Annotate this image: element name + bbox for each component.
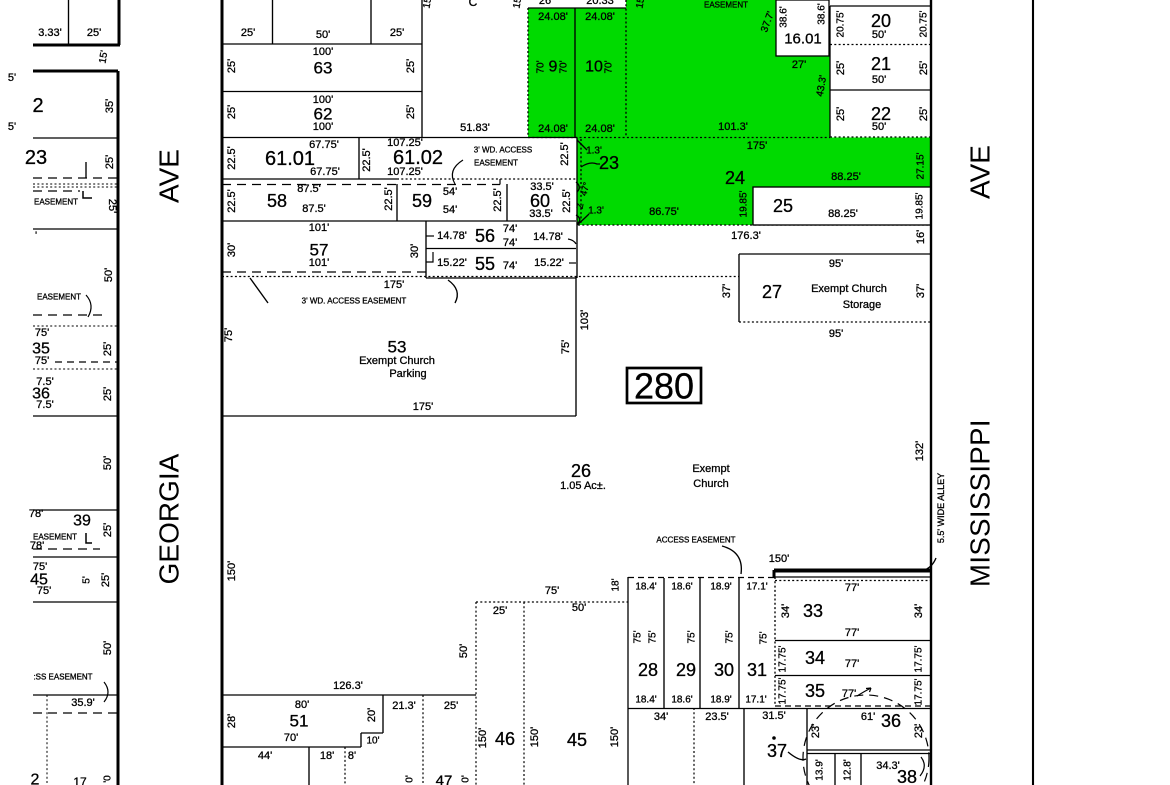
svg-text:AVE: AVE <box>154 149 185 203</box>
svg-text:GEORGIA: GEORGIA <box>154 453 185 584</box>
svg-text:50': 50' <box>102 456 114 470</box>
svg-text:35: 35 <box>805 681 825 701</box>
svg-text:25': 25' <box>102 523 114 537</box>
svg-text:EASEMENT: EASEMENT <box>34 198 78 207</box>
svg-text:101': 101' <box>309 257 329 269</box>
svg-text:75': 75' <box>223 328 235 342</box>
svg-text:35': 35' <box>104 99 116 113</box>
svg-text:18': 18' <box>320 750 334 762</box>
svg-text:126.3': 126.3' <box>333 680 363 692</box>
svg-text:Church: Church <box>693 478 728 490</box>
svg-text:44': 44' <box>258 750 272 762</box>
svg-text:10: 10 <box>585 59 603 76</box>
svg-text:33.5': 33.5' <box>529 208 553 220</box>
svg-text:88.25': 88.25' <box>831 171 861 183</box>
svg-text:87.5': 87.5' <box>302 203 326 215</box>
svg-text:22.5': 22.5' <box>492 188 504 212</box>
svg-text:23': 23' <box>810 724 822 738</box>
svg-text:22.5': 22.5' <box>226 146 238 170</box>
svg-text:34': 34' <box>654 711 668 723</box>
svg-text:87.5': 87.5' <box>297 183 321 195</box>
svg-text:46: 46 <box>495 729 515 749</box>
svg-text:28': 28' <box>226 714 238 728</box>
svg-text:25: 25 <box>773 196 793 216</box>
svg-text:75': 75' <box>759 631 770 644</box>
svg-text:24.08': 24.08' <box>585 123 615 135</box>
svg-text:25': 25' <box>918 61 930 75</box>
svg-text:18.4': 18.4' <box>635 582 656 593</box>
svg-text:25': 25' <box>226 105 238 119</box>
svg-text:25': 25' <box>100 573 112 587</box>
svg-text:51.83': 51.83' <box>460 122 490 134</box>
svg-text:50': 50' <box>102 641 114 655</box>
svg-text:23': 23' <box>913 724 925 738</box>
svg-text:17.75': 17.75' <box>778 645 789 672</box>
svg-text:25': 25' <box>918 107 930 121</box>
svg-text:58: 58 <box>267 191 287 211</box>
svg-text:18.9': 18.9' <box>710 695 731 706</box>
svg-text:20.33: 20.33 <box>586 0 614 7</box>
svg-text:33: 33 <box>803 601 823 621</box>
svg-text:51: 51 <box>290 712 309 731</box>
svg-text:2: 2 <box>31 772 40 785</box>
svg-text:25': 25' <box>241 27 255 39</box>
svg-text:54': 54' <box>443 186 457 198</box>
svg-text:50': 50' <box>872 29 886 41</box>
svg-text:29: 29 <box>676 660 696 680</box>
svg-text:Exempt Church: Exempt Church <box>811 283 887 295</box>
svg-text:EASEMENT: EASEMENT <box>37 293 81 302</box>
svg-text:15.22': 15.22' <box>534 257 564 269</box>
svg-text:5': 5' <box>82 576 93 584</box>
svg-text:74': 74' <box>503 223 517 235</box>
svg-text:75': 75' <box>37 585 51 597</box>
svg-text:78': 78' <box>29 508 43 520</box>
svg-text:24.08': 24.08' <box>538 11 568 23</box>
svg-text:18.9': 18.9' <box>710 582 731 593</box>
svg-text:61.01: 61.01 <box>265 148 315 170</box>
svg-text:39: 39 <box>73 513 91 530</box>
svg-text:15.22': 15.22' <box>437 257 467 269</box>
svg-text:1.05 Ac±.: 1.05 Ac±. <box>560 480 606 492</box>
svg-text:107.25': 107.25' <box>387 166 423 178</box>
svg-text:176.3': 176.3' <box>731 230 761 242</box>
svg-text:37': 37' <box>915 284 927 298</box>
svg-text:38.6': 38.6' <box>817 3 828 24</box>
svg-text:0': 0' <box>405 775 416 783</box>
svg-text:30: 30 <box>714 660 734 680</box>
svg-text:30': 30' <box>409 244 421 258</box>
svg-text:17.1': 17.1' <box>745 695 766 706</box>
svg-text:20.75': 20.75' <box>836 10 847 37</box>
svg-text:77': 77' <box>842 688 856 700</box>
svg-text:MISSISSIPPI: MISSISSIPPI <box>965 419 996 587</box>
svg-text:24.08': 24.08' <box>538 123 568 135</box>
svg-text:25': 25' <box>226 59 238 73</box>
svg-text:30': 30' <box>226 243 238 257</box>
svg-text:9: 9 <box>549 59 558 76</box>
svg-text:25': 25' <box>493 605 507 617</box>
svg-text:5': 5' <box>8 72 16 84</box>
svg-text:175': 175' <box>747 140 767 152</box>
svg-text:'0: '0 <box>103 775 114 783</box>
svg-text:19.85': 19.85' <box>915 192 926 219</box>
svg-text:25': 25' <box>405 105 417 119</box>
svg-text:2: 2 <box>32 95 43 117</box>
svg-text:27: 27 <box>762 282 782 302</box>
svg-text:25': 25' <box>104 155 116 169</box>
svg-text:8': 8' <box>348 750 356 762</box>
svg-text:12.8': 12.8' <box>843 759 854 780</box>
svg-text:16.01: 16.01 <box>784 31 822 48</box>
svg-text:34: 34 <box>805 648 825 668</box>
svg-text:27': 27' <box>792 59 806 71</box>
svg-text:75': 75' <box>560 340 572 354</box>
svg-text:25': 25' <box>444 700 458 712</box>
svg-text:70': 70' <box>559 60 570 73</box>
svg-text:18.6': 18.6' <box>671 695 692 706</box>
svg-text:18.4': 18.4' <box>635 695 656 706</box>
svg-text:22.5': 22.5' <box>226 189 238 213</box>
svg-text:95': 95' <box>829 328 843 340</box>
svg-text:0': 0' <box>461 775 472 783</box>
svg-text:75': 75' <box>725 630 736 643</box>
svg-text:23.5': 23.5' <box>705 711 729 723</box>
svg-text:34': 34' <box>913 604 925 618</box>
svg-text:16': 16' <box>915 230 927 244</box>
svg-text:45: 45 <box>567 730 587 750</box>
svg-text:53: 53 <box>388 338 407 357</box>
svg-text:21: 21 <box>871 54 891 74</box>
svg-text:103': 103' <box>579 310 591 330</box>
svg-text:20': 20' <box>366 708 378 722</box>
svg-text:26': 26' <box>539 0 553 7</box>
svg-text:25': 25' <box>102 387 114 401</box>
svg-text:17.1': 17.1' <box>746 582 767 593</box>
svg-text:150': 150' <box>529 727 541 747</box>
svg-text:C: C <box>469 0 478 9</box>
svg-text:74': 74' <box>503 237 517 249</box>
svg-text:17.75': 17.75' <box>914 645 925 672</box>
svg-text:50': 50' <box>316 29 330 41</box>
svg-text:Exempt Church: Exempt Church <box>359 355 435 367</box>
svg-text:19.85': 19.85' <box>739 190 750 217</box>
svg-text:27.15': 27.15' <box>916 152 927 179</box>
svg-text:25': 25' <box>87 27 101 39</box>
svg-text:23: 23 <box>25 147 47 169</box>
svg-text:95': 95' <box>829 258 843 270</box>
svg-text:50': 50' <box>872 121 886 133</box>
svg-text:18.6': 18.6' <box>671 582 692 593</box>
svg-text:22.5': 22.5' <box>361 148 373 172</box>
svg-text:101.3': 101.3' <box>718 121 748 133</box>
svg-text:10': 10' <box>366 736 379 747</box>
svg-text:50': 50' <box>103 268 115 282</box>
svg-text:25': 25' <box>390 27 404 39</box>
svg-text:Parking: Parking <box>389 368 426 380</box>
svg-text:100': 100' <box>313 121 333 133</box>
svg-text:75': 75' <box>633 630 644 643</box>
svg-text:78': 78' <box>30 540 44 552</box>
svg-text:86.75': 86.75' <box>649 206 679 218</box>
svg-text:70': 70' <box>536 60 547 73</box>
svg-text:75': 75' <box>35 327 49 339</box>
svg-text:18': 18' <box>611 578 622 591</box>
svg-text:35.9': 35.9' <box>71 697 95 709</box>
svg-text:13.9': 13.9' <box>815 759 826 780</box>
svg-text:59: 59 <box>412 191 432 211</box>
svg-text:37: 37 <box>767 741 787 761</box>
svg-text:280: 280 <box>634 366 694 407</box>
svg-text:3' WD. ACCESS EASEMENT: 3' WD. ACCESS EASEMENT <box>302 297 407 306</box>
svg-text:25': 25' <box>106 199 118 213</box>
svg-text:22.5': 22.5' <box>559 142 571 166</box>
svg-text:28: 28 <box>638 660 658 680</box>
svg-text:55: 55 <box>475 254 495 274</box>
svg-text:17.75': 17.75' <box>778 677 789 704</box>
svg-text:175': 175' <box>384 279 404 291</box>
svg-text:77': 77' <box>845 582 859 594</box>
svg-text:EASEMENT: EASEMENT <box>704 1 748 10</box>
svg-text:132': 132' <box>914 441 926 461</box>
svg-text:EASEMENT: EASEMENT <box>474 159 518 168</box>
svg-text:150': 150' <box>769 553 789 565</box>
svg-text:5.5' WIDE ALLEY: 5.5' WIDE ALLEY <box>936 473 946 543</box>
svg-text:150': 150' <box>477 728 489 748</box>
svg-text:22.5': 22.5' <box>383 187 395 211</box>
svg-text:Exempt: Exempt <box>692 463 729 475</box>
svg-text:100': 100' <box>313 46 333 58</box>
svg-text:150': 150' <box>609 727 621 747</box>
svg-text:24.08': 24.08' <box>585 11 615 23</box>
svg-text::SS EASEMENT: :SS EASEMENT <box>33 673 92 682</box>
svg-text:20: 20 <box>871 11 891 31</box>
svg-text:70': 70' <box>284 732 298 744</box>
svg-text:75': 75' <box>545 585 559 597</box>
svg-text:3.33': 3.33' <box>38 27 62 39</box>
svg-text:26: 26 <box>571 461 591 481</box>
svg-text:70': 70' <box>604 60 615 73</box>
svg-text:ACCESS EASEMENT: ACCESS EASEMENT <box>656 536 735 545</box>
svg-text:1.3': 1.3' <box>588 206 604 217</box>
svg-text:50': 50' <box>872 74 886 86</box>
svg-text:25': 25' <box>835 107 847 121</box>
svg-text:150': 150' <box>226 561 238 581</box>
svg-text:25': 25' <box>835 61 847 75</box>
svg-text:54': 54' <box>443 204 457 216</box>
svg-text:31: 31 <box>747 660 767 680</box>
svg-text:17.75': 17.75' <box>914 678 925 705</box>
svg-text:74': 74' <box>503 260 517 272</box>
svg-text:175': 175' <box>413 401 433 413</box>
svg-text:38: 38 <box>897 767 917 785</box>
svg-text:21.3': 21.3' <box>392 700 416 712</box>
svg-text:101': 101' <box>309 222 329 234</box>
svg-text:AVE: AVE <box>965 145 996 199</box>
svg-text:56: 56 <box>475 226 495 246</box>
svg-text:75': 75' <box>687 630 698 643</box>
svg-text:17: 17 <box>73 775 87 785</box>
svg-text:67.75': 67.75' <box>310 166 340 178</box>
svg-text:47: 47 <box>436 773 453 785</box>
svg-text:37': 37' <box>721 284 733 298</box>
svg-text:22.5': 22.5' <box>561 189 573 213</box>
svg-text:50': 50' <box>572 602 586 614</box>
svg-text:14.78': 14.78' <box>437 230 467 242</box>
svg-text:77': 77' <box>845 658 859 670</box>
svg-text:5': 5' <box>8 121 16 133</box>
svg-text:77': 77' <box>845 627 859 639</box>
svg-text:38.6': 38.6' <box>779 6 790 27</box>
svg-text:25': 25' <box>405 59 417 73</box>
svg-text:3' WD. ACCESS: 3' WD. ACCESS <box>474 146 532 155</box>
svg-text:61': 61' <box>861 711 875 723</box>
svg-text:14.78': 14.78' <box>533 231 563 243</box>
svg-text:24: 24 <box>725 168 745 188</box>
svg-text:7.5': 7.5' <box>36 399 53 411</box>
svg-text:36: 36 <box>881 711 901 731</box>
svg-text:25': 25' <box>102 342 114 356</box>
svg-text:': ' <box>35 230 37 242</box>
svg-text:34': 34' <box>780 604 792 618</box>
svg-text:15': 15' <box>97 50 110 65</box>
svg-text:88.25': 88.25' <box>828 208 858 220</box>
svg-text:23: 23 <box>599 153 619 173</box>
svg-text:Storage: Storage <box>843 299 882 311</box>
svg-text:31.5': 31.5' <box>762 710 786 722</box>
svg-text:63: 63 <box>314 59 333 78</box>
svg-text:20.75': 20.75' <box>919 10 930 37</box>
svg-text:75': 75' <box>35 355 49 367</box>
svg-text:80': 80' <box>295 699 309 711</box>
svg-text:75': 75' <box>648 630 659 643</box>
svg-text:50': 50' <box>458 644 470 658</box>
